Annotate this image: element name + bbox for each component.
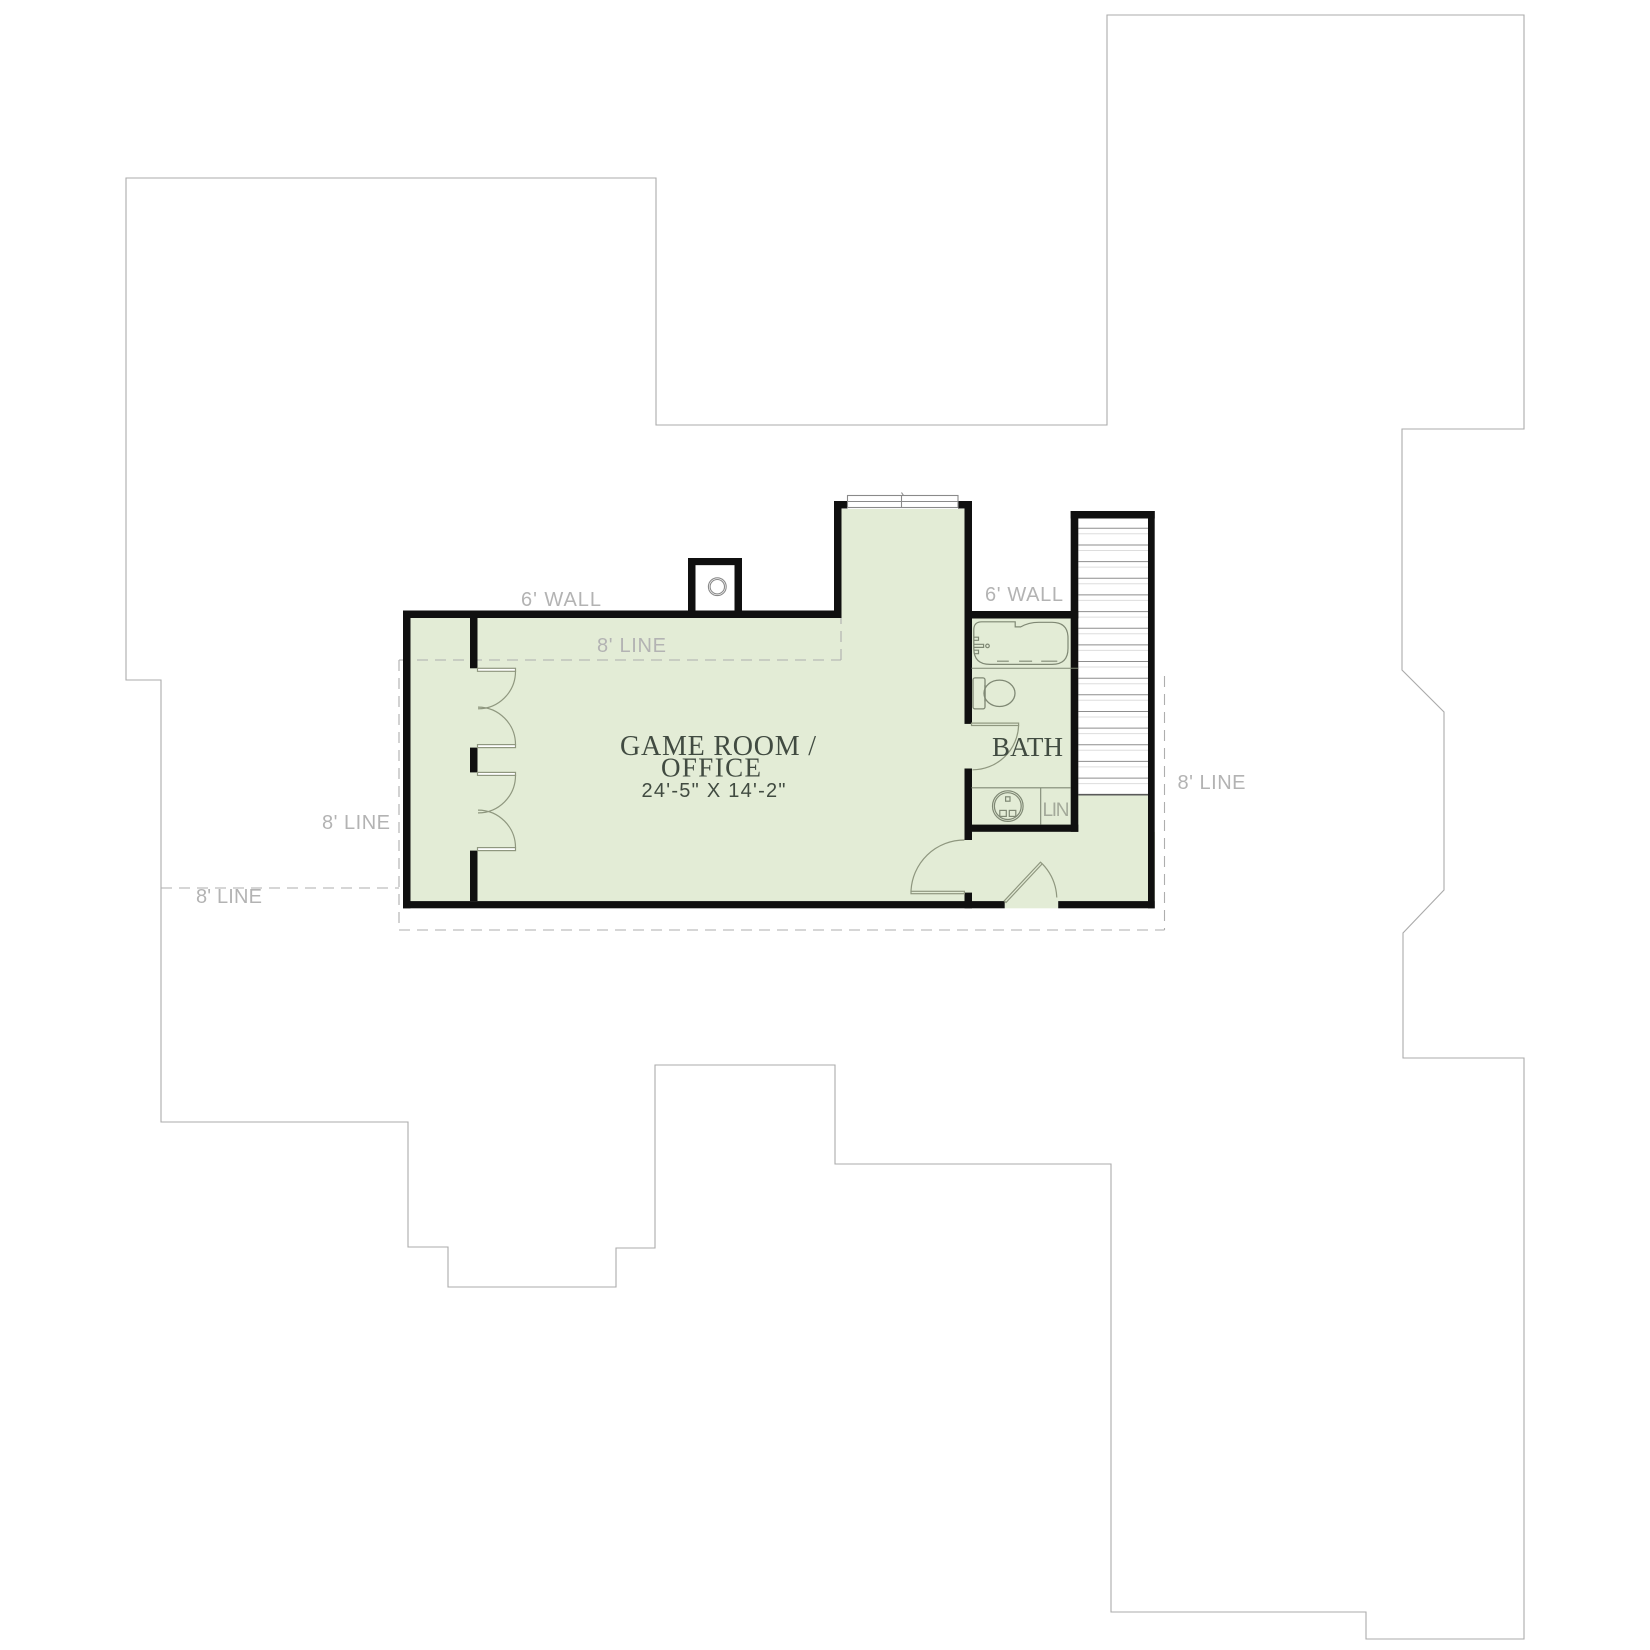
svg-text:8' LINE: 8' LINE (1178, 772, 1246, 794)
svg-text:LIN: LIN (1043, 800, 1070, 821)
svg-text:6' WALL: 6' WALL (521, 589, 601, 611)
svg-text:24'-5" X 14'-2": 24'-5" X 14'-2" (642, 780, 786, 802)
svg-text:8' LINE: 8' LINE (196, 886, 262, 908)
svg-text:6' WALL: 6' WALL (985, 584, 1063, 606)
svg-text:BATH: BATH (992, 732, 1063, 762)
svg-text:8' LINE: 8' LINE (597, 635, 666, 657)
svg-text:OFFICE: OFFICE (661, 753, 761, 783)
svg-text:8' LINE: 8' LINE (322, 812, 390, 834)
